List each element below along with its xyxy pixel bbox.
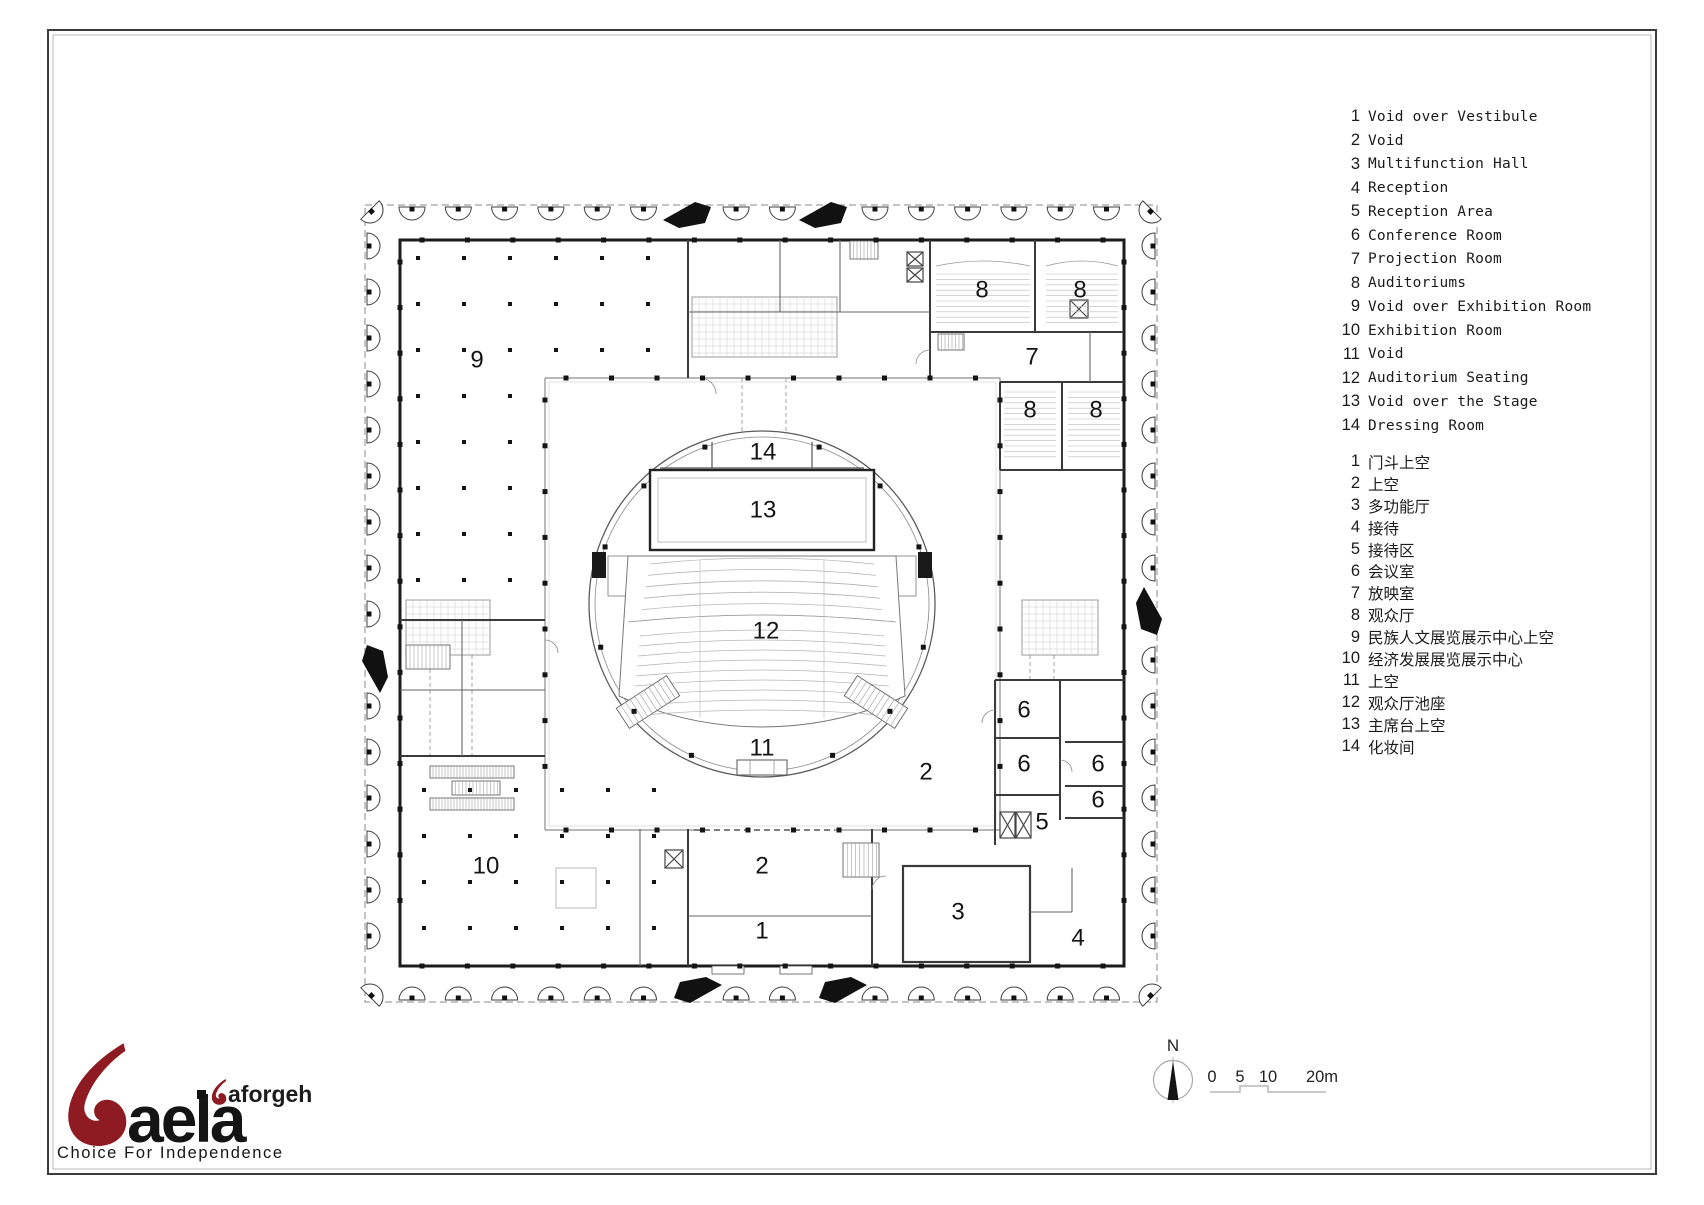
- legend-row: 7Projection Room: [1334, 248, 1591, 272]
- scale-label: 10: [1259, 1068, 1277, 1086]
- legend-label: Conference Room: [1368, 228, 1502, 244]
- legend-row: 6会议室: [1334, 560, 1554, 582]
- room-label: 6: [1017, 697, 1030, 724]
- legend-label: 上空: [1368, 670, 1399, 692]
- legend-row: 5接待区: [1334, 539, 1554, 561]
- room-label: 9: [470, 347, 483, 374]
- scale-bar-labels: 051020m: [1207, 1068, 1338, 1086]
- legend-number: 13: [1334, 715, 1360, 734]
- room-label: 8: [1023, 397, 1036, 424]
- logo-mark-icon: [57, 1040, 133, 1150]
- legend-chinese: 1门斗上空2上空3多功能厅4接待5接待区6会议室7放映室8观众厅9民族人文展览展…: [1334, 451, 1554, 757]
- room-label: 1: [755, 918, 768, 945]
- legend-number: 12: [1334, 693, 1360, 712]
- legend-row: 3Multifunction Hall: [1334, 153, 1591, 177]
- legend-label: 观众厅: [1368, 604, 1415, 626]
- scale-label: 20m: [1306, 1068, 1338, 1086]
- legend-number: 2: [1334, 131, 1360, 150]
- scale-bar: 051020m: [1207, 1068, 1338, 1092]
- room-label: 4: [1071, 925, 1084, 952]
- legend-row: 6Conference Room: [1334, 224, 1591, 248]
- legend-number: 6: [1334, 226, 1360, 245]
- logo-square-icon: [197, 1090, 206, 1099]
- legend-label: Void over Exhibition Room: [1368, 299, 1591, 315]
- legend-label: 经济发展展览展示中心: [1368, 648, 1523, 670]
- room-label: 5: [1035, 809, 1048, 836]
- legend-number: 8: [1334, 274, 1360, 293]
- room-label: 13: [750, 497, 777, 524]
- legend-label: 放映室: [1368, 582, 1415, 604]
- room-label: 8: [1089, 397, 1102, 424]
- legend-row: 14Dressing Room: [1334, 414, 1591, 438]
- legend-row: 8观众厅: [1334, 604, 1554, 626]
- legend-label: 民族人文展览展示中心上空: [1368, 626, 1554, 648]
- legend-number: 7: [1334, 584, 1360, 603]
- legend-label: Dressing Room: [1368, 418, 1484, 434]
- legend-label: 主席台上空: [1368, 714, 1446, 736]
- logo-subbrand-text: aforgeh: [228, 1083, 312, 1106]
- legend-number: 11: [1334, 671, 1360, 690]
- room-label: 11: [750, 735, 775, 762]
- company-logo: aela aforgeh Choice For Independence: [57, 1036, 327, 1168]
- legend-number: 14: [1334, 737, 1360, 756]
- room-label: 6: [1017, 751, 1030, 778]
- legend-number: 3: [1334, 155, 1360, 174]
- room-label: 6: [1091, 751, 1104, 778]
- legend-english: 1Void over Vestibule2Void3Multifunction …: [1334, 105, 1591, 438]
- room-label: 2: [755, 853, 768, 880]
- room-label: 14: [750, 439, 777, 466]
- legend-row: 1Void over Vestibule: [1334, 105, 1591, 129]
- legend-row: 9Void over Exhibition Room: [1334, 295, 1591, 319]
- logo-mini-mark-icon: [209, 1078, 228, 1106]
- legend-number: 5: [1334, 540, 1360, 559]
- legend-row: 3多功能厅: [1334, 495, 1554, 517]
- north-arrow: N: [1154, 1036, 1193, 1103]
- legend-row: 9民族人文展览展示中心上空: [1334, 626, 1554, 648]
- legend-number: 13: [1334, 392, 1360, 411]
- legend-label: Projection Room: [1368, 251, 1502, 267]
- legend-row: 10Exhibition Room: [1334, 319, 1591, 343]
- legend-label: Void: [1368, 346, 1404, 362]
- room-label: 6: [1091, 787, 1104, 814]
- legend-row: 4接待: [1334, 517, 1554, 539]
- legend-row: 2上空: [1334, 473, 1554, 495]
- legend-label: 多功能厅: [1368, 495, 1430, 517]
- legend-label: 会议室: [1368, 560, 1415, 582]
- legend-label: 接待区: [1368, 539, 1415, 561]
- legend-row: 5Reception Area: [1334, 200, 1591, 224]
- room-label: 8: [975, 277, 988, 304]
- legend-label: Reception Area: [1368, 204, 1493, 220]
- legend-number: 10: [1334, 649, 1360, 668]
- legend-row: 10经济发展展览展示中心: [1334, 648, 1554, 670]
- legend-row: 4Reception: [1334, 176, 1591, 200]
- room-label: 7: [1025, 344, 1038, 371]
- legend-number: 9: [1334, 297, 1360, 316]
- legend-row: 14化妆间: [1334, 736, 1554, 758]
- legend-label: 化妆间: [1368, 736, 1415, 758]
- legend-number: 11: [1334, 345, 1360, 364]
- legend-number: 10: [1334, 321, 1360, 340]
- legend-label: Reception: [1368, 180, 1448, 196]
- legend-row: 12Auditorium Seating: [1334, 366, 1591, 390]
- north-label: N: [1167, 1036, 1179, 1055]
- legend-label: 接待: [1368, 517, 1399, 539]
- legend-label: Void: [1368, 133, 1404, 149]
- legend-number: 9: [1334, 628, 1360, 647]
- room-label: 3: [951, 899, 964, 926]
- legend-label: 门斗上空: [1368, 451, 1430, 473]
- legend-label: Void over Vestibule: [1368, 109, 1538, 125]
- legend-number: 4: [1334, 179, 1360, 198]
- auditorium-circle: [589, 431, 935, 777]
- legend-label: Auditorium Seating: [1368, 370, 1529, 386]
- legend-number: 5: [1334, 202, 1360, 221]
- legend-row: 2Void: [1334, 129, 1591, 153]
- drawing-sheet: 98878814131211266665102134 N 051020m 1Vo…: [0, 0, 1704, 1205]
- legend-row: 13Void over the Stage: [1334, 390, 1591, 414]
- legend-label: Auditoriums: [1368, 275, 1466, 291]
- legend-number: 1: [1334, 107, 1360, 126]
- legend-row: 11上空: [1334, 670, 1554, 692]
- legend-label: 上空: [1368, 473, 1399, 495]
- legend-row: 8Auditoriums: [1334, 271, 1591, 295]
- logo-tagline: Choice For Independence: [57, 1144, 284, 1163]
- legend-row: 13主席台上空: [1334, 714, 1554, 736]
- legend-number: 14: [1334, 416, 1360, 435]
- room-label: 12: [753, 618, 780, 645]
- legend-label: 观众厅池座: [1368, 692, 1446, 714]
- legend-number: 12: [1334, 369, 1360, 388]
- logo-subbrand: aforgeh: [197, 1076, 312, 1106]
- legend-number: 4: [1334, 518, 1360, 537]
- room-label: 10: [473, 853, 500, 880]
- legend-label: Void over the Stage: [1368, 394, 1538, 410]
- legend-label: Exhibition Room: [1368, 323, 1502, 339]
- legend-number: 3: [1334, 496, 1360, 515]
- legend-row: 1门斗上空: [1334, 451, 1554, 473]
- legend-number: 8: [1334, 606, 1360, 625]
- room-label: 8: [1073, 277, 1086, 304]
- legend-number: 6: [1334, 562, 1360, 581]
- scale-label: 0: [1207, 1068, 1216, 1086]
- legend-number: 7: [1334, 250, 1360, 269]
- scale-label: 5: [1235, 1068, 1244, 1086]
- legend-number: 1: [1334, 452, 1360, 471]
- legend-row: 11Void: [1334, 343, 1591, 367]
- legend-row: 12观众厅池座: [1334, 692, 1554, 714]
- legend-number: 2: [1334, 474, 1360, 493]
- legend-label: Multifunction Hall: [1368, 156, 1529, 172]
- legend-row: 7放映室: [1334, 582, 1554, 604]
- room-label: 2: [919, 759, 932, 786]
